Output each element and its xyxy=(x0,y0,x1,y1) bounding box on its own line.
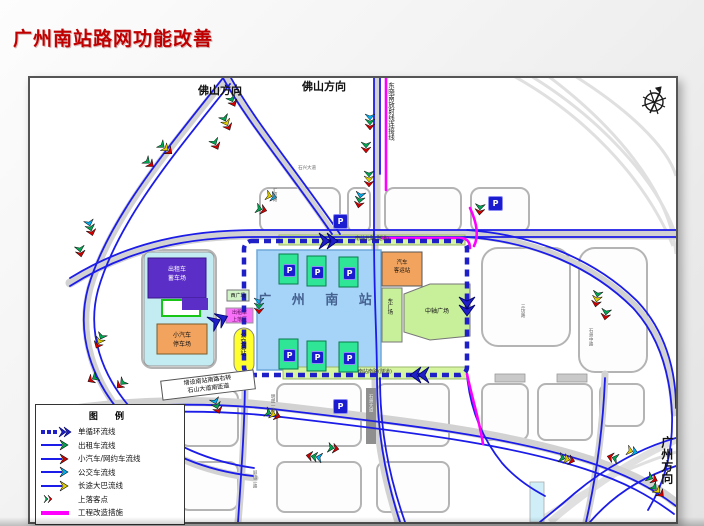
road-label-mingsheng-road: 明盛一路 xyxy=(270,394,275,428)
legend-icon-measure-line xyxy=(40,507,78,519)
facility-coach-station: 汽车 客运站 xyxy=(382,258,422,274)
road-label-shixing-avenue: 石兴大道 xyxy=(298,166,316,171)
road-label-pingshan-road: 屏山二路 xyxy=(252,470,257,504)
parking-icon: P xyxy=(311,266,324,279)
legend-row-loop: 单循环流线 xyxy=(40,425,180,439)
legend-row-taxi: 出租车流线 xyxy=(40,439,180,453)
compass-icon xyxy=(642,87,666,114)
direction-label-foshan-left: 佛山方向 xyxy=(198,85,242,98)
facility-bus-terminal: 公交总站 xyxy=(238,332,245,372)
legend-row-coach: 长途大巴流线 xyxy=(40,479,180,493)
parking-icon: P xyxy=(333,214,348,229)
facility-car-park: 小汽车 停车场 xyxy=(157,330,207,348)
road-label-shizhou-middle-road: 石洲中路 xyxy=(588,328,593,362)
legend-icon-taxi-flow xyxy=(40,439,78,451)
legend-icon-coach-flow xyxy=(40,480,78,492)
legend-row-stop-point: 上落客点 xyxy=(40,493,180,507)
legend-row-measure: 工程改造措施 xyxy=(40,506,180,520)
station-name: 广 州 南 站 xyxy=(257,294,381,309)
direction-label-guangzhou: 广州方向 xyxy=(659,436,673,520)
direction-label-foshan-right: 佛山方向 xyxy=(302,81,346,94)
facility-taxi-storage: 出租车 蓄车场 xyxy=(148,264,206,282)
legend-icon-stop-point xyxy=(40,493,78,505)
legend-icon-car-flow xyxy=(40,453,78,465)
label-dongxiaonan-line: 东晓南放射线连接线 xyxy=(386,82,393,194)
slide-title: 广州南站路网功能改善 xyxy=(13,24,213,51)
parking-icon: P xyxy=(311,351,324,364)
legend-title: 图 例 xyxy=(40,409,180,422)
parking-icon: P xyxy=(343,267,356,280)
legend-row-car: 小汽车/网约车流线 xyxy=(40,452,180,466)
map-panel: 佛山方向 佛山方向 东晓南放射线连接线 广州方向 广 州 南 站 出租车 蓄车场… xyxy=(28,76,678,524)
road-label-huiying-road: 汇盈路 xyxy=(272,188,277,214)
legend-row-bus: 公交车流线 xyxy=(40,466,180,480)
parking-icon: P xyxy=(333,399,348,414)
slide-root: 广州南站路网功能改善 xyxy=(0,0,704,526)
parking-icon: P xyxy=(488,196,503,211)
parking-icon: P xyxy=(283,349,296,362)
facility-taxi-pickup: 出租车 上落区 xyxy=(226,309,253,323)
road-label-shizhou-avenue: 石洲大道 xyxy=(368,394,373,438)
legend-box: 图 例 单循环流线 出租车流线 xyxy=(35,404,185,525)
legend-icon-bus-flow xyxy=(40,466,78,478)
facility-east-square: 东广场 xyxy=(386,298,392,334)
facility-central-plaza: 中轴广场 xyxy=(410,306,464,315)
parking-icon: P xyxy=(343,352,356,365)
road-label-north-road: 南站北路(隧道) xyxy=(279,237,465,243)
road-label-south-road: 南站南路(隧道) xyxy=(283,370,467,376)
legend-icon-dashed-loop xyxy=(40,426,78,438)
facility-west-square: 西广场 xyxy=(227,292,249,299)
road-label-sanfang-road: 三坊路 xyxy=(520,304,525,330)
parking-icon: P xyxy=(283,264,296,277)
